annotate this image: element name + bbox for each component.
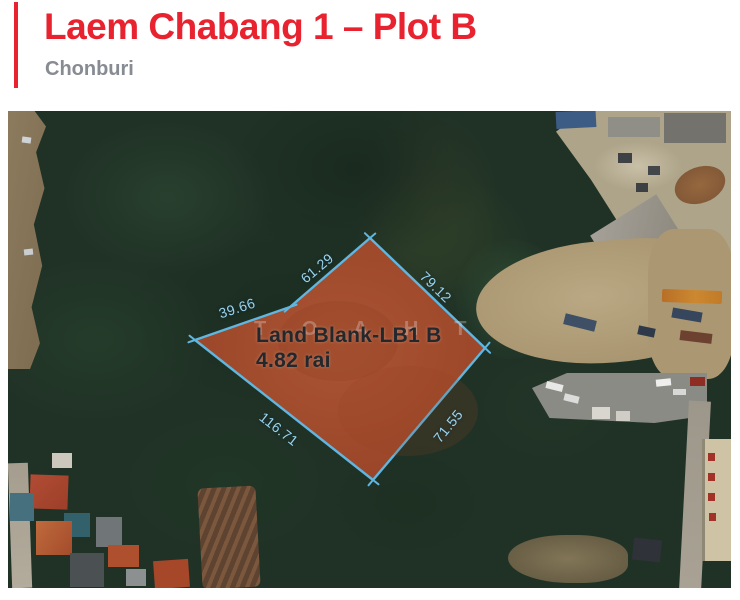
title-accent-bar <box>14 2 18 88</box>
page-title: Laem Chabang 1 – Plot B <box>44 6 477 48</box>
satellite-map: 39.66 61.29 79.12 116.71 71.55 TOAHT Lan… <box>8 111 731 588</box>
plot-area-label: 4.82 rai <box>256 348 442 373</box>
page-subtitle: Chonburi <box>45 58 134 81</box>
plot-name-label: Land Blank-LB1 B <box>256 323 442 348</box>
plot-label: Land Blank-LB1 B 4.82 rai <box>256 323 442 373</box>
